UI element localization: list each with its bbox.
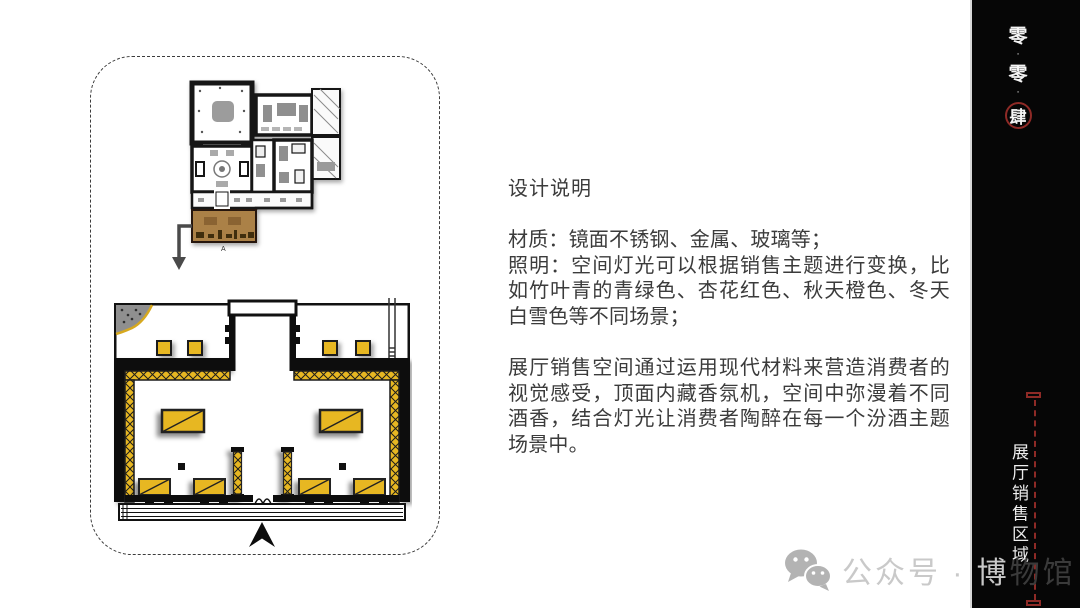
zoom-arrow [172,226,192,270]
display-tables [139,410,385,495]
page-number: 零 · 零 · 肆 [972,26,1064,129]
overall-floor-plan: A [168,74,352,272]
sales-zone-highlight [192,210,256,242]
page-char: 零 [1008,26,1027,46]
ladder-wall [389,298,395,360]
design-description: 设计说明 材质：镜面不锈钢、金属、玻璃等； 照明：空间灯光可以根据销售主题进行变… [508,176,950,458]
space-experience-paragraph: 展厅销售空间通过运用现代材料来营造消费者的视觉感受，顶面内藏香氛机，空间中弥漫着… [508,356,950,458]
truss-columns [231,447,294,499]
zone-label: A [221,246,226,253]
materials-lighting-paragraph: 材质：镜面不锈钢、金属、玻璃等； 照明：空间灯光可以根据销售主题进行变换，比如竹… [508,228,950,330]
red-line-top-cap [1026,392,1041,398]
page-char-circled: 肆 [1005,102,1032,129]
page-char: 零 [1008,64,1027,84]
north-arrow-icon [249,522,275,547]
sidebar: 零 · 零 · 肆 展厅销售区域 [970,0,1080,608]
landscape-corner [116,305,152,334]
page-separator-dot: · [1017,51,1020,59]
vestibule [225,301,300,371]
design-description-title: 设计说明 [508,176,950,202]
wechat-icon [784,548,832,592]
slide: A [0,0,1080,608]
column-dot [339,463,346,470]
entrance-band [119,504,405,520]
watermark: 公众号 · 博 物馆 [784,548,1076,592]
watermark-text-light: 公众号 · 博 [842,548,1010,592]
sales-area-plan [112,298,412,550]
display-pedestals [157,341,370,355]
page-separator-dot: · [1017,89,1020,97]
red-line-bottom-cap [1026,600,1041,606]
overall-plan-building [192,83,340,242]
column-dot [178,463,185,470]
watermark-text-dark: 物馆 [1010,548,1076,592]
